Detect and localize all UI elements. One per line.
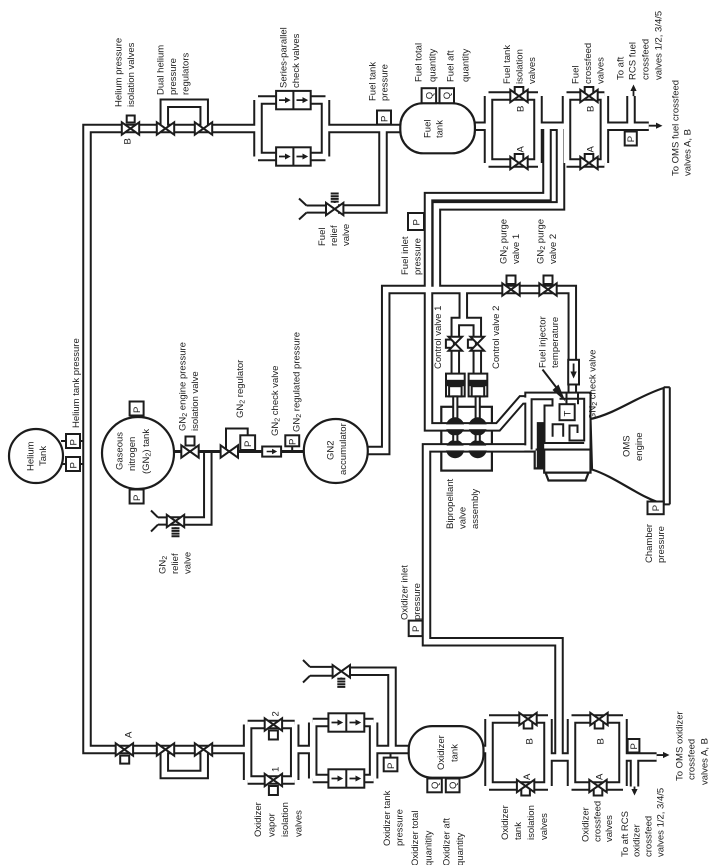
svg-text:A: A [586, 146, 597, 153]
svg-text:Oxidizer: Oxidizer [436, 735, 447, 770]
svg-text:Fuel: Fuel [571, 66, 582, 84]
svg-text:Fuel total: Fuel total [414, 43, 425, 82]
svg-text:GN2 regulator: GN2 regulator [235, 360, 247, 418]
svg-text:Oxidizer tank: Oxidizer tank [382, 790, 393, 846]
svg-text:B: B [586, 106, 597, 112]
svg-text:B: B [516, 106, 527, 112]
svg-text:P: P [243, 441, 254, 447]
svg-text:valves 1/2, 3/4/5: valves 1/2, 3/4/5 [654, 11, 665, 80]
svg-text:P: P [379, 116, 390, 122]
svg-text:valves: valves [604, 815, 615, 842]
svg-text:nitrogen: nitrogen [127, 437, 138, 471]
svg-text:Q: Q [430, 782, 441, 789]
svg-text:1: 1 [271, 767, 282, 772]
svg-text:valves A, B: valves A, B [683, 129, 694, 176]
svg-text:Fuel: Fuel [423, 120, 434, 138]
svg-text:temperature: temperature [550, 317, 561, 368]
svg-text:Oxidizer inlet: Oxidizer inlet [400, 565, 411, 620]
svg-text:Oxidizer: Oxidizer [253, 802, 264, 837]
svg-text:Oxidizer: Oxidizer [581, 807, 592, 842]
svg-text:To aft RCS: To aft RCS [620, 811, 631, 857]
svg-text:To aft: To aft [616, 56, 627, 80]
svg-text:Gaseous: Gaseous [115, 432, 126, 470]
svg-text:P: P [68, 439, 79, 445]
svg-text:crossfeed: crossfeed [644, 816, 655, 857]
svg-text:valves: valves [539, 813, 550, 840]
svg-text:To OMS oxidizer: To OMS oxidizer [675, 711, 686, 781]
svg-text:Control valve 1: Control valve 1 [433, 306, 444, 369]
svg-text:P: P [386, 763, 397, 769]
svg-text:quanitity: quanitity [424, 830, 435, 865]
svg-text:crossfeed: crossfeed [583, 43, 594, 84]
svg-text:regulators: regulators [181, 53, 192, 95]
svg-text:relief: relief [329, 225, 340, 246]
svg-text:Fuel inlet: Fuel inlet [400, 236, 411, 275]
svg-text:valve: valve [183, 552, 194, 574]
svg-text:valve: valve [458, 507, 469, 529]
svg-text:P: P [411, 626, 422, 632]
svg-text:tank: tank [450, 744, 461, 762]
svg-text:GN2 check valve: GN2 check valve [270, 366, 282, 436]
svg-text:B: B [596, 738, 607, 744]
svg-text:Control valve 2: Control valve 2 [491, 306, 502, 369]
svg-text:A: A [124, 731, 135, 738]
svg-text:vapor: vapor [267, 813, 278, 837]
svg-text:P: P [68, 462, 79, 468]
svg-text:P: P [288, 439, 299, 445]
svg-text:crossfeed: crossfeed [641, 39, 652, 80]
svg-text:isolation valve: isolation valve [190, 371, 201, 431]
svg-text:Helium pressure: Helium pressure [114, 38, 125, 107]
svg-text:A: A [516, 146, 527, 153]
svg-text:isolation: isolation [515, 49, 526, 84]
svg-text:quantity: quantity [428, 48, 439, 82]
svg-text:Q: Q [448, 782, 459, 789]
svg-text:B: B [525, 738, 536, 744]
svg-text:quantity: quantity [455, 832, 466, 865]
svg-text:assembly: assembly [470, 489, 481, 529]
svg-text:A: A [522, 773, 533, 780]
svg-text:Fuel: Fuel [317, 228, 328, 246]
svg-text:P: P [411, 219, 422, 225]
svg-text:quantity: quantity [461, 48, 472, 82]
svg-text:Dual helium: Dual helium [156, 45, 167, 95]
svg-text:valves A, B: valves A, B [700, 738, 711, 785]
svg-text:Series-parallel: Series-parallel [279, 27, 290, 88]
svg-text:Bipropellant: Bipropellant [445, 478, 456, 529]
svg-text:Fuel tank: Fuel tank [368, 62, 379, 101]
svg-text:tank: tank [513, 822, 524, 840]
svg-text:check valves: check valves [291, 33, 302, 88]
svg-text:RCS fuel: RCS fuel [628, 42, 639, 80]
svg-text:Chamber: Chamber [644, 524, 655, 563]
svg-text:valves 1/2, 3/4/5: valves 1/2, 3/4/5 [656, 788, 667, 857]
svg-text:pressure: pressure [380, 64, 391, 101]
svg-text:pressure: pressure [412, 583, 423, 620]
svg-text:isolation: isolation [280, 802, 291, 837]
svg-text:Fuel injector: Fuel injector [538, 316, 549, 368]
svg-text:To OMS fuel crossfeed: To OMS fuel crossfeed [671, 80, 682, 176]
svg-text:valve 2: valve 2 [548, 234, 559, 264]
svg-text:P: P [132, 407, 143, 413]
svg-text:crossfeed: crossfeed [593, 801, 604, 842]
svg-text:oxidizer: oxidizer [632, 824, 643, 857]
svg-text:P: P [651, 505, 662, 511]
svg-text:(GN2) tank: (GN2) tank [141, 429, 153, 474]
svg-text:GN2 purge: GN2 purge [536, 219, 548, 264]
svg-text:pressure: pressure [413, 238, 424, 275]
svg-text:Oxidizer total: Oxidizer total [410, 811, 421, 865]
svg-text:OMS: OMS [622, 435, 633, 457]
svg-text:engine: engine [634, 432, 645, 461]
svg-text:P: P [132, 495, 143, 501]
svg-text:valves: valves [596, 57, 607, 84]
svg-text:pressure: pressure [395, 809, 406, 846]
svg-text:P: P [626, 136, 637, 142]
svg-text:Fuel aft: Fuel aft [446, 50, 457, 82]
svg-text:valves: valves [527, 57, 538, 84]
svg-text:relief: relief [170, 553, 181, 574]
svg-text:GN2 purge: GN2 purge [499, 219, 511, 264]
svg-text:Helium tank pressure: Helium tank pressure [71, 338, 82, 428]
svg-text:T: T [563, 411, 574, 417]
svg-text:accumulator: accumulator [338, 423, 349, 475]
svg-text:2: 2 [271, 711, 282, 716]
svg-text:crossfeed: crossfeed [687, 739, 698, 780]
svg-text:tank: tank [435, 120, 446, 138]
svg-text:isolation valves: isolation valves [126, 42, 137, 107]
svg-text:Helium: Helium [26, 441, 37, 471]
svg-text:Fuel tank: Fuel tank [502, 45, 513, 84]
svg-text:Oxidizer aft: Oxidizer aft [442, 818, 453, 865]
svg-text:Q: Q [424, 92, 435, 99]
svg-text:isolation: isolation [526, 805, 537, 840]
svg-text:GN2 check valve: GN2 check valve [588, 350, 600, 420]
svg-text:P: P [629, 743, 640, 749]
svg-text:Tank: Tank [38, 446, 49, 466]
svg-text:pressure: pressure [168, 58, 179, 95]
svg-text:B: B [123, 138, 134, 144]
svg-text:Oxidizer: Oxidizer [500, 805, 511, 840]
svg-text:pressure: pressure [656, 526, 667, 563]
svg-text:valves: valves [294, 810, 305, 837]
svg-text:valve 1: valve 1 [511, 234, 522, 264]
svg-text:Q: Q [442, 92, 453, 99]
svg-text:GN2 engine pressure: GN2 engine pressure [178, 342, 190, 431]
svg-text:A: A [595, 773, 606, 780]
svg-text:GN2: GN2 [326, 440, 337, 460]
svg-text:valve: valve [341, 224, 352, 246]
